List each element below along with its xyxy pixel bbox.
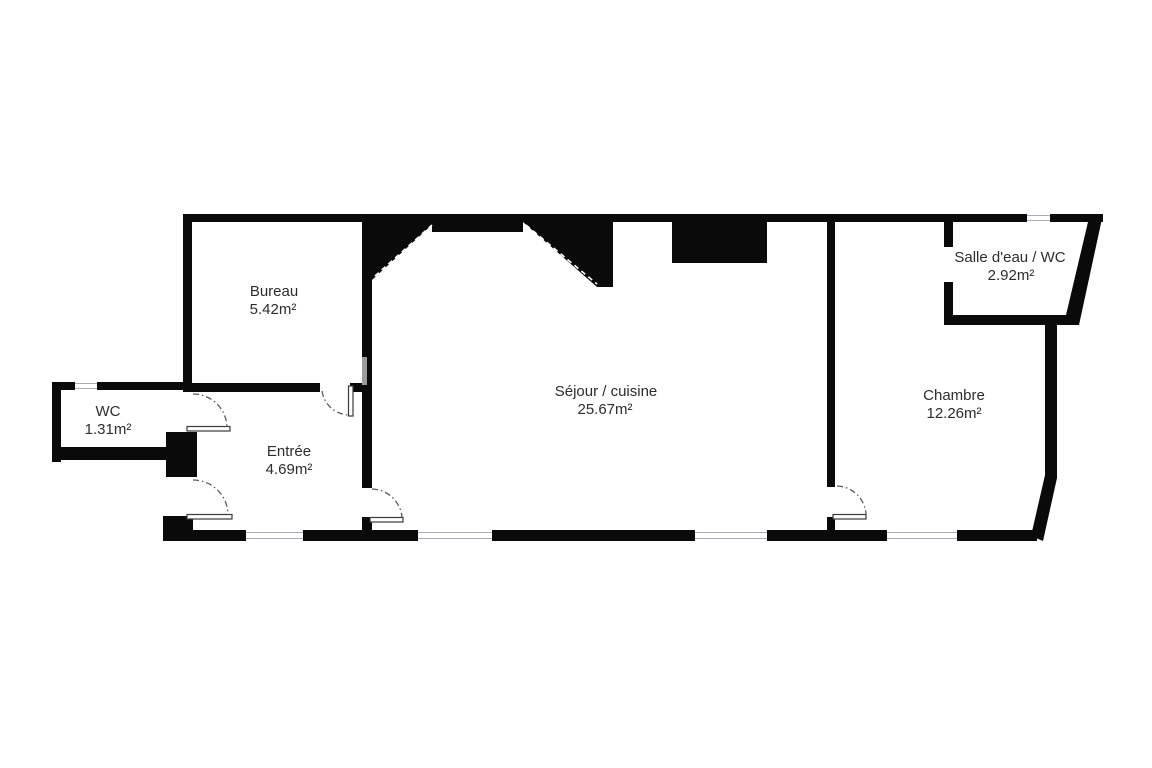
- wall-bureau-sejour-gray-notch: [362, 357, 367, 385]
- wall-left-exterior: [183, 214, 192, 383]
- wall-salledeau-right-slant: [1066, 214, 1103, 325]
- wall-bottom-seg-5: [957, 530, 1037, 541]
- door-wc: [187, 394, 230, 431]
- room-label-chambre-name: Chambre: [923, 387, 985, 404]
- windows: [75, 213, 1050, 542]
- room-labels: Bureau 5.42m² WC 1.31m² Entrée 4.69m² Sé…: [85, 249, 1066, 478]
- wall-top-mid-thick-segment: [432, 214, 523, 232]
- door-bureau: [322, 386, 353, 416]
- window-wc: [75, 381, 97, 391]
- window-bottom-chambre: [887, 529, 957, 542]
- wall-wc-bottom: [52, 447, 170, 460]
- wall-bottom-seg-4: [767, 530, 887, 541]
- room-label-bureau-name: Bureau: [250, 283, 298, 300]
- room-label-wc-name: WC: [96, 403, 121, 420]
- window-bottom-sejour-1: [418, 529, 492, 542]
- window-bottom-entree: [246, 529, 303, 542]
- wall-bureau-bottom-left: [183, 383, 320, 392]
- room-label-salledeau-name: Salle d'eau / WC: [954, 249, 1065, 266]
- room-label-salledeau-area: 2.92m²: [988, 267, 1035, 284]
- wall-chambre-right: [1045, 325, 1057, 478]
- door-entry: [187, 480, 232, 519]
- wall-salledeau-bottom: [944, 315, 1079, 325]
- wall-bottom-left-corner-block: [163, 516, 193, 541]
- wall-top-left-segment: [183, 214, 1027, 222]
- room-label-entree-area: 4.69m²: [266, 461, 313, 478]
- wall-bottom-seg-3: [492, 530, 695, 541]
- room-label-bureau-area: 5.42m²: [250, 301, 297, 318]
- wall-chambre-right-slant: [1031, 475, 1057, 541]
- room-label-entree-name: Entrée: [267, 443, 311, 460]
- room-label-wc-area: 1.31m²: [85, 421, 132, 438]
- wall-bottom-seg-2: [303, 530, 418, 541]
- wall-entry-mid-block: [166, 432, 197, 477]
- room-label-sejour-name: Séjour / cuisine: [555, 383, 658, 400]
- window-top-salledeau: [1027, 213, 1050, 223]
- floor-plan-svg: Bureau 5.42m² WC 1.31m² Entrée 4.69m² Sé…: [0, 0, 1152, 768]
- room-label-sejour-area: 25.67m²: [577, 401, 632, 418]
- door-chambre: [833, 486, 866, 519]
- wall-sejour-chambre-divider: [827, 222, 835, 487]
- wall-salledeau-left-upper: [944, 222, 953, 247]
- door-sejour: [370, 489, 403, 522]
- floor-plan-page: Bureau 5.42m² WC 1.31m² Entrée 4.69m² Sé…: [0, 0, 1152, 768]
- wall-entree-sejour-divider: [362, 392, 372, 488]
- chimney-corner-mid: [523, 222, 613, 287]
- wall-top-projecting-block: [672, 214, 767, 263]
- room-label-chambre-area: 12.26m²: [926, 405, 981, 422]
- window-bottom-sejour-2: [695, 529, 767, 542]
- wall-wc-top: [52, 382, 192, 390]
